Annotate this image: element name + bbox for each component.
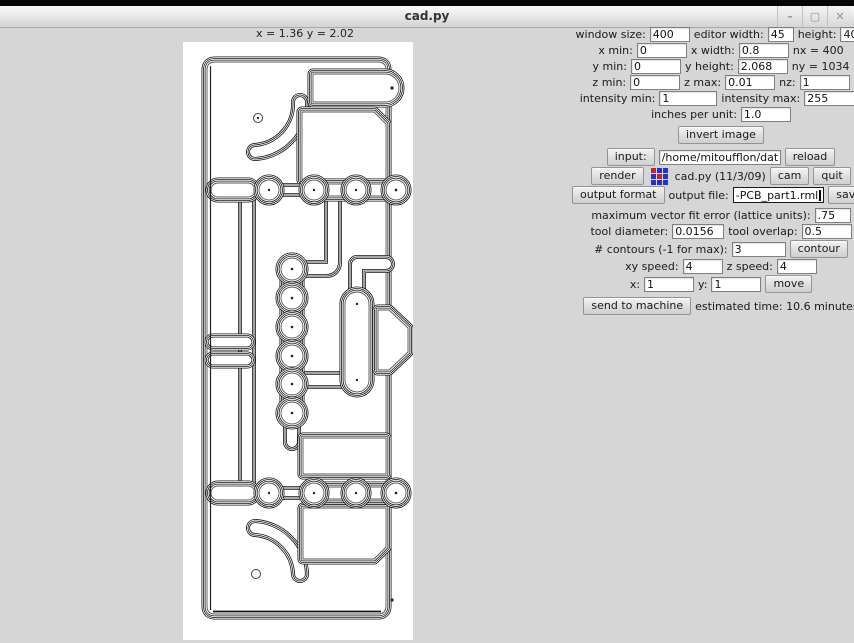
z-min-label: z min:	[592, 76, 626, 89]
z-min-input[interactable]	[630, 75, 680, 90]
cursor-coordinates: x = 1.36 y = 2.02	[183, 27, 427, 40]
input-path-field[interactable]	[659, 150, 781, 165]
estimated-time-label: estimated time: 10.6 minutes	[695, 300, 854, 313]
output-file-text: -PCB_part1.rml	[736, 189, 818, 202]
reload-button[interactable]: reload	[785, 148, 836, 166]
invert-image-button[interactable]: invert image	[678, 126, 764, 144]
editor-height-label: height:	[798, 28, 837, 41]
x-position-label: x:	[630, 278, 640, 291]
z-max-input[interactable]	[725, 75, 775, 90]
z-speed-label: z speed:	[727, 260, 773, 273]
ny-label: ny = 1034	[792, 60, 850, 73]
y-position-input[interactable]	[711, 277, 761, 292]
window-size-label: window size:	[576, 28, 646, 41]
window-controls: – ▢ ✕	[777, 6, 852, 27]
output-file-label: output file:	[669, 189, 729, 202]
pcb-toolpath-canvas[interactable]	[183, 42, 413, 640]
render-button[interactable]: render	[591, 167, 643, 185]
nz-input[interactable]	[800, 75, 850, 90]
app-version-label: cad.py (11/3/09)	[675, 170, 766, 183]
control-panel: window size: editor width: height: x min…	[590, 26, 852, 316]
editor-width-input[interactable]	[768, 27, 794, 42]
editor-width-label: editor width:	[694, 28, 764, 41]
x-width-label: x width:	[691, 44, 735, 57]
tool-diameter-label: tool diameter:	[590, 225, 668, 238]
text-cursor	[819, 190, 821, 201]
output-format-button[interactable]: output format	[572, 186, 664, 204]
nz-label: nz:	[779, 76, 795, 89]
z-speed-input[interactable]	[777, 259, 817, 274]
x-width-input[interactable]	[739, 43, 789, 58]
xy-speed-input[interactable]	[683, 259, 723, 274]
y-height-input[interactable]	[738, 59, 788, 74]
window-title: cad.py	[0, 9, 854, 23]
x-position-input[interactable]	[644, 277, 694, 292]
cam-button[interactable]: cam	[770, 167, 810, 185]
intensity-max-input[interactable]	[804, 91, 854, 106]
xy-speed-label: xy speed:	[625, 260, 678, 273]
vector-fit-error-label: maximum vector fit error (lattice units)…	[591, 209, 810, 222]
send-to-machine-button[interactable]: send to machine	[583, 297, 691, 315]
move-button[interactable]: move	[765, 275, 812, 293]
save-button[interactable]: save	[828, 186, 854, 204]
intensity-min-label: intensity min:	[580, 92, 656, 105]
x-min-label: x min:	[598, 44, 632, 57]
inches-per-unit-label: inches per unit:	[651, 108, 737, 121]
input-button[interactable]: input:	[607, 148, 655, 166]
x-min-input[interactable]	[637, 43, 687, 58]
minimize-icon[interactable]: –	[777, 6, 802, 27]
y-min-label: y min:	[593, 60, 627, 73]
titlebar: cad.py – ▢ ✕	[0, 6, 854, 28]
contours-input[interactable]	[732, 242, 786, 257]
editor-height-input[interactable]	[840, 27, 854, 42]
y-height-label: y height:	[685, 60, 734, 73]
window-size-input[interactable]	[650, 27, 690, 42]
contour-button[interactable]: contour	[790, 240, 848, 258]
intensity-min-input[interactable]	[659, 91, 717, 106]
y-min-input[interactable]	[631, 59, 681, 74]
fab-logo-icon	[651, 168, 668, 185]
quit-button[interactable]: quit	[813, 167, 850, 185]
maximize-icon[interactable]: ▢	[802, 6, 827, 27]
tool-diameter-input[interactable]	[672, 224, 724, 239]
tool-overlap-input[interactable]	[802, 224, 852, 239]
inches-per-unit-input[interactable]	[741, 107, 791, 122]
contours-label: # contours (-1 for max):	[594, 243, 728, 256]
pcb-toolpath-drawing	[183, 42, 413, 640]
y-position-label: y:	[698, 278, 707, 291]
nx-label: nx = 400	[793, 44, 844, 57]
intensity-max-label: intensity max:	[721, 92, 800, 105]
output-file-field[interactable]: -PCB_part1.rml	[733, 187, 824, 203]
tool-overlap-label: tool overlap:	[728, 225, 797, 238]
z-max-label: z max:	[684, 76, 721, 89]
vector-fit-error-input[interactable]	[815, 208, 851, 223]
close-icon[interactable]: ✕	[827, 6, 852, 27]
